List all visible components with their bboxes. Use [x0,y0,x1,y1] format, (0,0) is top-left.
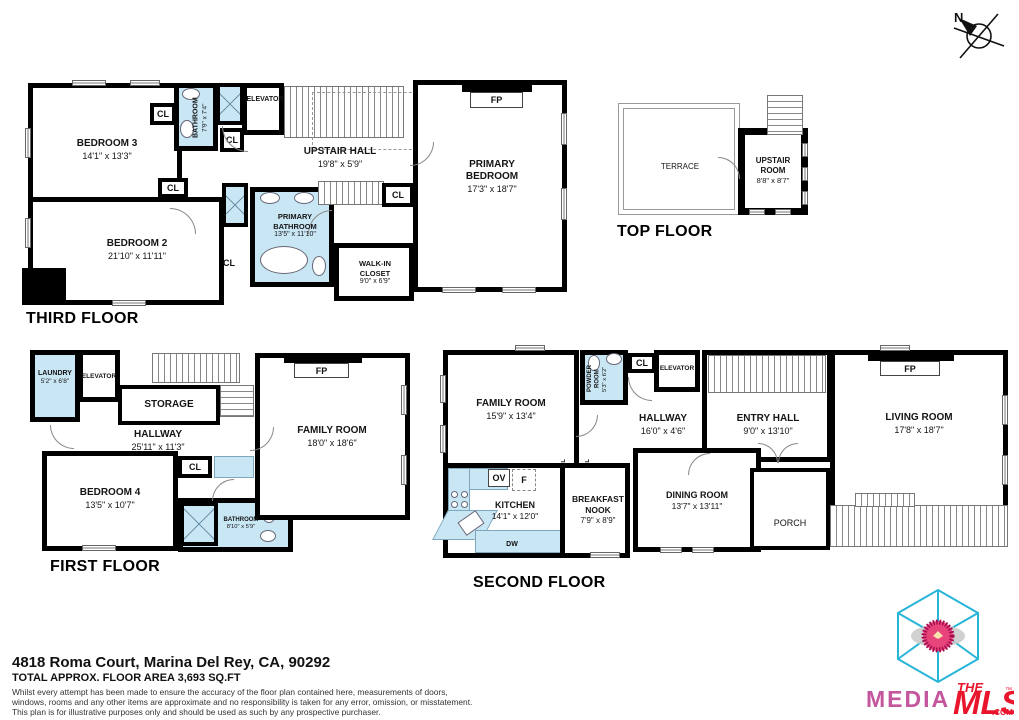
room-dims: 7'9" x 8'9" [581,516,616,526]
window [802,167,808,181]
room-name: BEDROOM 2 [107,238,168,251]
room-label-elevator1: ELEVATOR [78,371,120,383]
window [775,209,791,215]
fireplace-mantel [284,353,362,363]
logo-com-text: .COM [992,708,1013,716]
room-name: LAUNDRY [38,370,72,379]
room-label-bedroom4: BEDROOM 4 13'5" x 10'7" [58,483,162,515]
room-label-family2: FAMILY ROOM 15'9" x 13'4" [458,393,564,427]
closet-label: CL [189,462,201,472]
window [442,287,476,293]
staircase [767,95,803,135]
closet-box: CL [382,183,414,207]
stove-burner [451,501,458,508]
window [802,191,808,205]
window [112,300,146,306]
oven-box: OV [488,469,510,487]
room-label-bedroom3: BEDROOM 3 14'1" x 13'3" [52,133,162,167]
window [1002,455,1008,485]
room-dims: 5'3" x 6'2" [602,366,609,391]
closet-box: CL [150,103,176,125]
window [25,128,31,158]
room-name: FAMILY ROOM [476,398,545,411]
disclaimer-line1: Whilst every attempt has been made to en… [12,687,632,697]
room-label-bedroom2: BEDROOM 2 21'10" x 11'11" [77,233,197,267]
room-name: DINING ROOM [666,490,728,501]
dw-text: DW [506,541,518,548]
room-name: BATHROOM [193,98,202,139]
closet-label-text: CL [585,459,591,467]
closet-box: CL [178,456,212,478]
room-name: ELEVATOR [660,365,694,373]
window [82,545,116,551]
top-floor-title: TOP FLOOR [617,223,712,241]
total-floor-area: TOTAL APPROX. FLOOR AREA 3,693 SQ.FT [12,672,632,684]
fireplace-mantel [462,80,532,92]
window [401,455,407,485]
room-name: HALLWAY [639,413,687,426]
room-porch [750,468,830,550]
stove-burner [461,501,468,508]
logo-media-text: MEDIA [866,686,950,712]
first-floor-plan: CL FP LAUNDRY 5'2" x 6'8" ELEVATOR STORA… [22,345,417,557]
room-label-hallway2: HALLWAY 16'0" x 4'6" [615,409,711,441]
room-name: STORAGE [144,399,193,412]
room-dims: 17'8" x 18'7" [894,425,943,436]
window [440,375,446,403]
room-name: PRIMARY BEDROOM [442,159,542,184]
room-label-hallway1: HALLWAY 25'11" x 11'3" [102,425,214,457]
room-name: BEDROOM 3 [77,138,138,151]
window [502,287,536,293]
shower [180,502,218,546]
closet-label: CL [636,358,648,368]
door-arc [576,415,598,437]
door-arc [50,425,74,449]
window [692,547,714,553]
staircase-lower [318,181,384,205]
room-label-living: LIVING ROOM 17'8" x 18'7" [862,407,976,441]
room-label-upstair-room: UPSTAIR ROOM 8'8" x 8'7" [745,150,801,192]
room-name: UPSTAIR HALL [304,146,377,159]
room-dims: 19'8" x 5'9" [318,159,362,170]
closet-label: CL [582,453,594,473]
cabinet [214,456,254,478]
second-floor-title: SECOND FLOOR [473,574,606,592]
window [802,143,808,157]
property-address: 4818 Roma Court, Marina Del Rey, CA, 902… [12,654,632,671]
shower [216,83,244,125]
room-label-family1: FAMILY ROOM 18'0" x 18'6" [274,420,390,454]
room-dims: 13'5" x 11'10" [274,231,316,240]
room-name: ELEVATOR [82,373,116,381]
floor-plan-page: N FP CL CL CL CL CL [0,0,1019,720]
closet-label: CL [558,453,570,473]
room-name: BATHROOM [224,517,259,525]
fireplace-label: FP [491,95,503,105]
second-floor-plan: CL FP OV F DW CL CL [440,345,1012,573]
room-dims: 16'0" x 4'6" [641,426,685,437]
door-arc [628,377,652,401]
room-dims: 18'0" x 18'6" [307,438,356,449]
room-label-breakfast-nook: BREAKFAST NOOK 7'9" x 8'9" [566,487,630,533]
room-label-entry-hall: ENTRY HALL 9'0" x 13'10" [720,409,816,441]
fireplace-label: FP [904,364,916,374]
third-floor-title: THIRD FLOOR [26,310,139,328]
window [515,345,545,351]
room-dims: 14'1" x 12'0" [492,511,539,522]
room-label-elevator2: ELEVATOR [656,363,698,375]
room-label-storage: STORAGE [128,397,210,413]
window [880,345,910,351]
staircase [708,355,826,393]
room-dims: 8'10" x 5'9" [227,524,256,531]
room-dims: 15'9" x 13'4" [486,411,535,422]
closet-label-text: CL [561,459,567,467]
sink-icon [294,192,314,204]
room-dims: 13'7" x 13'11" [672,501,723,512]
disclaimer-line2: windows, rooms and any other items are a… [12,697,632,707]
window [1002,395,1008,425]
top-floor-plan: TERRACE UPSTAIR ROOM 8'8" x 8'7" [615,95,815,225]
fireplace-box: FP [294,363,349,378]
staircase [152,353,240,383]
room-name: BREAKFAST NOOK [566,494,630,515]
window [72,80,106,86]
fireplace-box: FP [470,92,523,108]
dishwasher-label: DW [498,538,526,550]
first-floor-title: FIRST FLOOR [50,558,160,576]
window [749,209,765,215]
room-dims: 9'0" x 6'9" [360,278,391,287]
room-dims: 8'8" x 8'7" [757,176,790,185]
fridge-box: F [512,469,536,491]
room-label-walkin-closet: WALK-IN CLOSET 9'0" x 6'9" [344,254,406,292]
oven-label: OV [492,473,505,483]
room-label-bathroom3: BATHROOM 7'9" x 7'4" [188,90,214,146]
room-label-laundry: LAUNDRY 5'2" x 6'8" [34,363,76,393]
room-dims: 13'5" x 10'7" [85,500,134,511]
room-elevator3 [242,83,284,135]
room-label-kitchen: KITCHEN 14'1" x 12'0" [468,495,562,527]
room-label-porch: PORCH [762,517,818,531]
closet-label: CL [157,109,169,119]
window [130,80,160,86]
room-name: WALK-IN CLOSET [344,259,406,278]
room-name: BEDROOM 4 [80,487,141,500]
room-name: FAMILY ROOM [297,425,366,438]
exterior-steps [855,493,915,507]
sink-icon [260,192,280,204]
closet-label: CL [392,190,404,200]
wall-block [22,268,66,305]
shower [222,183,248,227]
room-label-primary-bedroom: PRIMARY BEDROOM 17'3" x 18'7" [442,153,542,201]
room-name: ENTRY HALL [737,413,800,426]
closet-label: CL [214,253,244,273]
closet-label-text: CL [223,258,235,268]
window [590,552,620,558]
room-name: ELEVATOR [247,96,284,105]
third-floor-plan: FP CL CL CL CL CL B [22,78,572,308]
toilet-icon [312,256,326,276]
room-dims: 14'1" x 13'3" [82,151,131,162]
window [401,385,407,415]
room-dims: 7'9" x 7'4" [201,104,209,132]
room-name: HALLWAY [134,429,182,442]
closet-label: CL [167,183,179,193]
compass-icon: N [932,4,1010,66]
fireplace-mantel [868,350,954,361]
exterior-staircase [830,505,1008,547]
room-name: UPSTAIR ROOM [745,156,801,176]
window [440,425,446,453]
window [561,113,567,145]
window [561,188,567,220]
fireplace-box: FP [880,361,940,376]
room-label-upstair-hall: UPSTAIR HALL 19'8" x 5'9" [280,142,400,174]
staircase-return [220,385,254,417]
door-arc [212,479,234,501]
room-label-elevator3: ELEVATOR [244,94,286,106]
room-dims: 5'2" x 6'8" [41,378,69,386]
fridge-label: F [521,475,527,485]
room-dims: 9'0" x 13'10" [743,426,792,437]
room-name: TERRACE [661,162,699,172]
window [25,218,31,248]
room-label-powder: POWDER ROOM 5'3" x 6'2" [586,359,610,399]
room-label-terrace: TERRACE [635,160,725,174]
room-name: KITCHEN [495,500,535,511]
closet-box: CL [158,178,188,198]
fireplace-label: FP [316,366,328,376]
room-label-primary-bathroom: PRIMARY BATHROOM 13'5" x 11'10" [260,208,330,244]
media-mls-logo: MEDIA THE MLS ™ .COM [862,586,1014,716]
stove-burner [451,491,458,498]
closet-box: CL [628,353,656,373]
window [660,547,682,553]
room-name: LIVING ROOM [885,412,952,425]
logo-tm-text: ™ [1005,687,1012,694]
room-name: PRIMARY BATHROOM [260,212,330,231]
bathtub-icon [260,246,308,274]
room-name: POWDER ROOM [587,359,602,399]
room-label-bathroom1: BATHROOM 8'10" x 5'9" [218,513,264,535]
stove-burner [461,491,468,498]
room-name: PORCH [774,518,807,529]
room-dims: 17'3" x 18'7" [467,184,516,195]
room-dims: 25'11" x 11'3" [131,442,184,453]
disclaimer-line3: This plan is for illustrative purposes o… [12,707,632,717]
room-dims: 21'10" x 11'11" [108,251,166,262]
footer: 4818 Roma Court, Marina Del Rey, CA, 902… [12,654,632,717]
room-label-dining: DINING ROOM 13'7" x 13'11" [646,485,748,517]
